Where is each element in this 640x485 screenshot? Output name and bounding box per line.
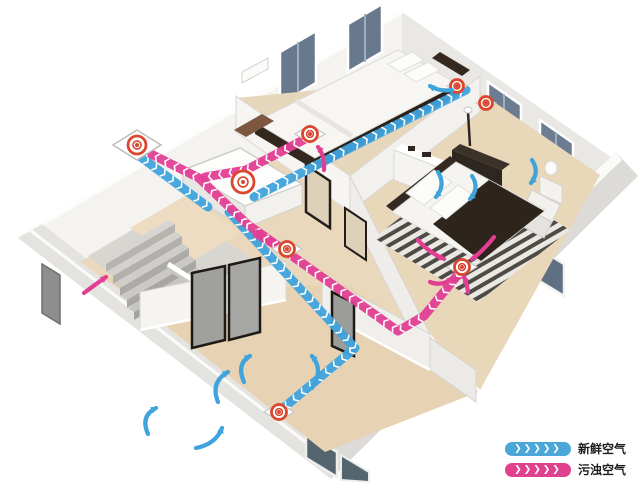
legend-item-polluted-air: ❯❯❯❯❯ 污浊空气 xyxy=(505,463,626,477)
vent-unit-top-fan xyxy=(232,171,254,193)
table-lamp xyxy=(545,161,557,175)
floor-lamp-shade xyxy=(464,107,472,113)
living-double-door-left xyxy=(192,266,225,348)
dresser-item xyxy=(422,152,431,157)
side-door xyxy=(42,264,60,324)
dresser-item xyxy=(408,146,415,151)
wall-ac-unit xyxy=(242,58,268,83)
polluted-air-chevrons: ❯❯❯❯❯ xyxy=(514,465,562,475)
front-window-2 xyxy=(341,455,369,482)
flow-arrow-fresh xyxy=(196,428,222,448)
legend: ❯❯❯❯❯ 新鲜空气 ❯❯❯❯❯ 污浊空气 xyxy=(505,442,626,477)
floorplan-illustration: ❯❯❯❯❯❯❯❯❯❯❯❯❯❯❯❯❯❯❯❯❯❯❯❯❯❯❯❯❯❯❯❯❯❯❯❯❯❯❯❯… xyxy=(0,0,640,485)
fresh-air-swatch: ❯❯❯❯❯ xyxy=(505,442,571,456)
polluted-air-swatch: ❯❯❯❯❯ xyxy=(505,463,571,477)
polluted-air-label: 污浊空气 xyxy=(578,463,626,477)
fresh-air-label: 新鲜空气 xyxy=(578,442,626,456)
ventilation-diagram: ❯❯❯❯❯❯❯❯❯❯❯❯❯❯❯❯❯❯❯❯❯❯❯❯❯❯❯❯❯❯❯❯❯❯❯❯❯❯❯❯… xyxy=(0,0,640,485)
living-double-door-right xyxy=(229,258,260,340)
legend-item-fresh-air: ❯❯❯❯❯ 新鲜空气 xyxy=(505,442,626,456)
fresh-air-chevrons: ❯❯❯❯❯ xyxy=(514,444,562,454)
flow-arrow-fresh xyxy=(145,408,156,434)
